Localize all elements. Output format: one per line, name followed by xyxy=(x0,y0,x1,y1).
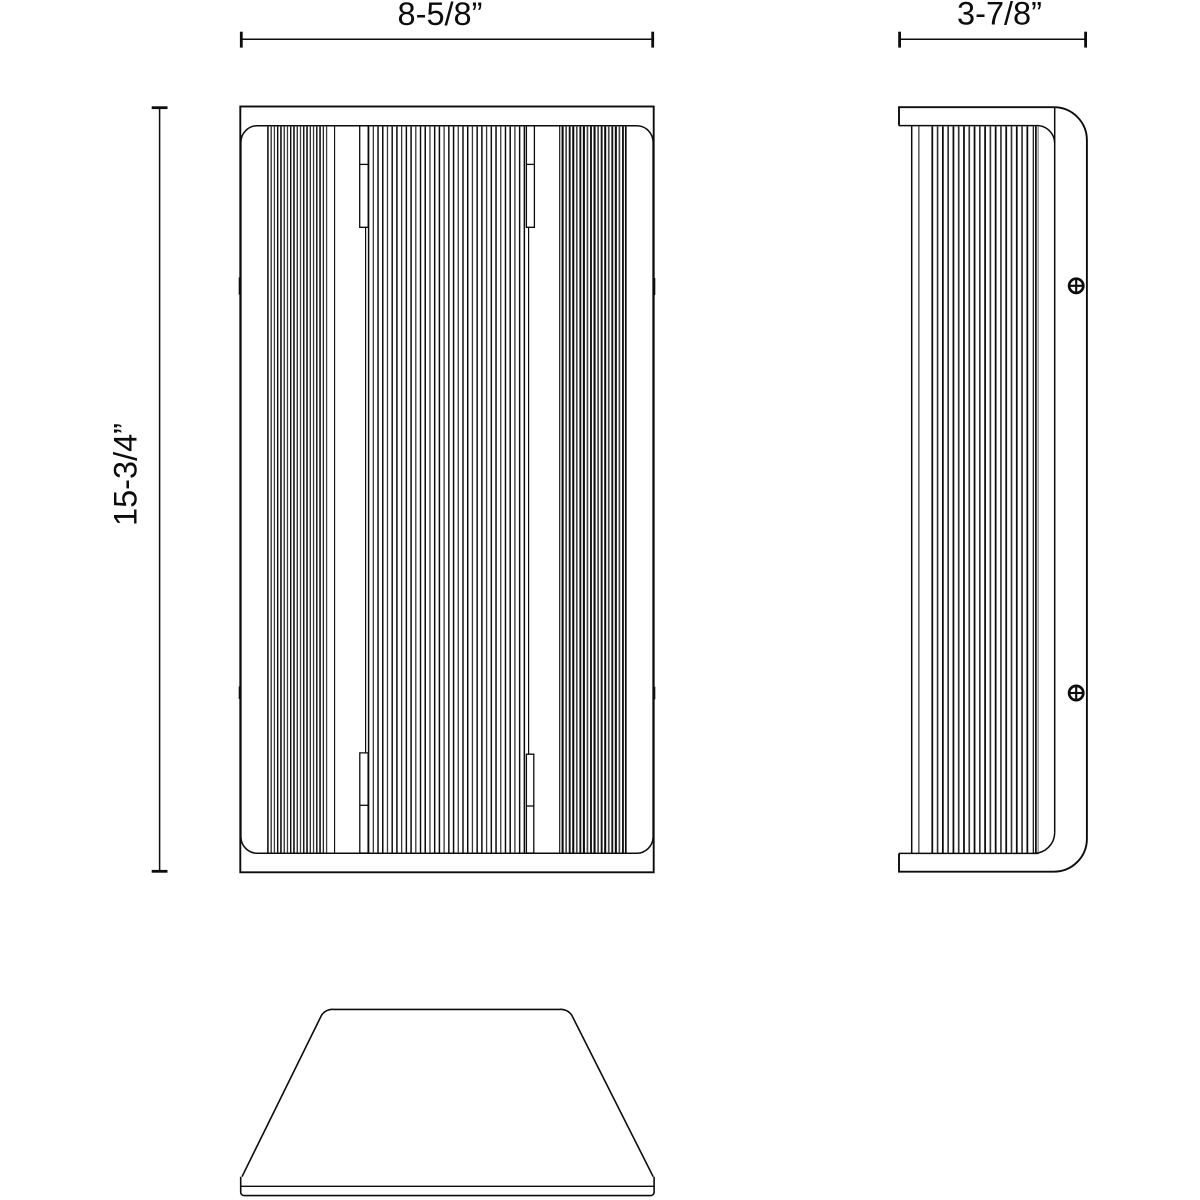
svg-text:3-7/8”: 3-7/8” xyxy=(957,0,1042,32)
svg-text:8-5/8”: 8-5/8” xyxy=(398,0,483,32)
svg-text:15-3/4”: 15-3/4” xyxy=(108,423,144,526)
